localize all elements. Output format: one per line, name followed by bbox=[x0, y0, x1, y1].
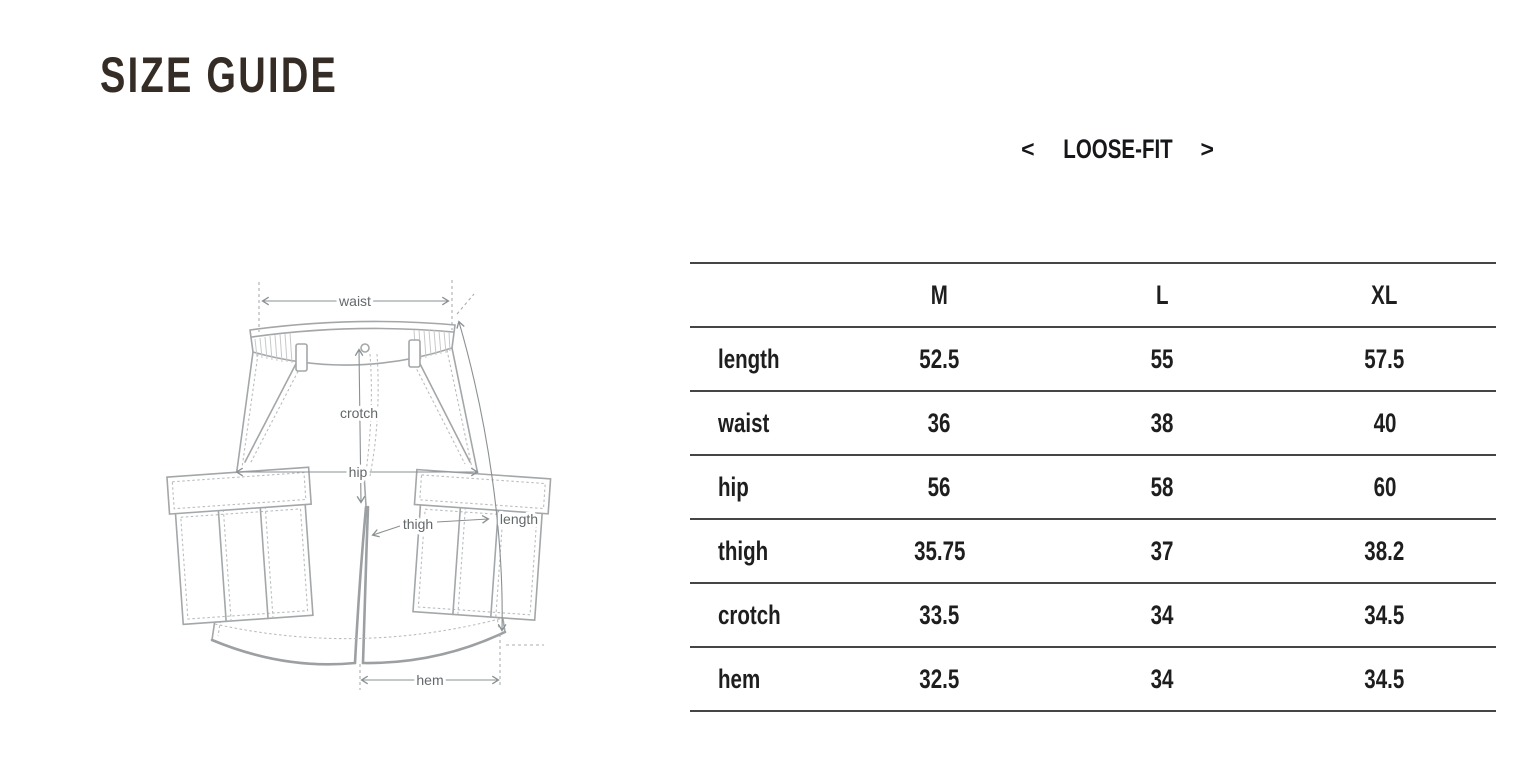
belt-loop bbox=[296, 344, 307, 371]
cell-value: 34 bbox=[1051, 583, 1274, 647]
table-row-thigh: thigh 35.75 37 38.2 bbox=[690, 519, 1496, 583]
row-label: crotch bbox=[690, 583, 828, 647]
shorts-measurement-diagram: waist crotch hip thigh length hem bbox=[158, 272, 568, 712]
cell-value: 34 bbox=[1051, 647, 1274, 711]
diagram-label-crotch: crotch bbox=[340, 405, 378, 421]
cell-value: 32.5 bbox=[828, 647, 1051, 711]
table-row-waist: waist 36 38 40 bbox=[690, 391, 1496, 455]
cell-value: 57.5 bbox=[1273, 327, 1496, 391]
cell-value: 40 bbox=[1273, 391, 1496, 455]
belt-loop bbox=[409, 340, 420, 367]
right-cargo-pocket bbox=[407, 470, 551, 621]
cell-value: 34.5 bbox=[1273, 647, 1496, 711]
size-column-header-xl: XL bbox=[1273, 263, 1496, 327]
size-column-header-m: M bbox=[828, 263, 1051, 327]
fit-prev-arrow-icon[interactable]: < bbox=[1019, 138, 1036, 161]
cell-value: 52.5 bbox=[828, 327, 1051, 391]
table-row-hem: hem 32.5 34 34.5 bbox=[690, 647, 1496, 711]
cell-value: 35.75 bbox=[828, 519, 1051, 583]
table-row-length: length 52.5 55 57.5 bbox=[690, 327, 1496, 391]
cell-value: 38 bbox=[1051, 391, 1274, 455]
diagram-label-hem: hem bbox=[416, 672, 443, 688]
diagram-label-thigh: thigh bbox=[403, 516, 433, 532]
size-table: M L XL length 52.5 55 57.5 waist 36 38 4… bbox=[690, 262, 1496, 712]
diagram-label-waist: waist bbox=[338, 293, 371, 309]
row-label: length bbox=[690, 327, 828, 391]
cell-value: 37 bbox=[1051, 519, 1274, 583]
fit-selector: < LOOSE-FIT > bbox=[715, 136, 1517, 163]
row-label: thigh bbox=[690, 519, 828, 583]
cell-value: 34.5 bbox=[1273, 583, 1496, 647]
cell-value: 33.5 bbox=[828, 583, 1051, 647]
table-row-crotch: crotch 33.5 34 34.5 bbox=[690, 583, 1496, 647]
left-cargo-pocket bbox=[167, 467, 319, 625]
cell-value: 56 bbox=[828, 455, 1051, 519]
table-row-hip: hip 56 58 60 bbox=[690, 455, 1496, 519]
page-title-text: SIZE GUIDE bbox=[100, 50, 338, 100]
row-label: hip bbox=[690, 455, 828, 519]
row-label: waist bbox=[690, 391, 828, 455]
cell-value: 60 bbox=[1273, 455, 1496, 519]
size-table-header-row: M L XL bbox=[690, 263, 1496, 327]
page-title: SIZE GUIDE bbox=[100, 50, 413, 100]
fit-label: LOOSE-FIT bbox=[1046, 136, 1190, 163]
diagram-label-length: length bbox=[500, 511, 538, 527]
size-column-header-l: L bbox=[1051, 263, 1274, 327]
cell-value: 58 bbox=[1051, 455, 1274, 519]
cell-value: 38.2 bbox=[1273, 519, 1496, 583]
diagram-label-hip: hip bbox=[349, 464, 368, 480]
size-table-corner-cell bbox=[690, 263, 828, 327]
fit-next-arrow-icon[interactable]: > bbox=[1199, 138, 1216, 161]
cell-value: 36 bbox=[828, 391, 1051, 455]
cell-value: 55 bbox=[1051, 327, 1274, 391]
row-label: hem bbox=[690, 647, 828, 711]
